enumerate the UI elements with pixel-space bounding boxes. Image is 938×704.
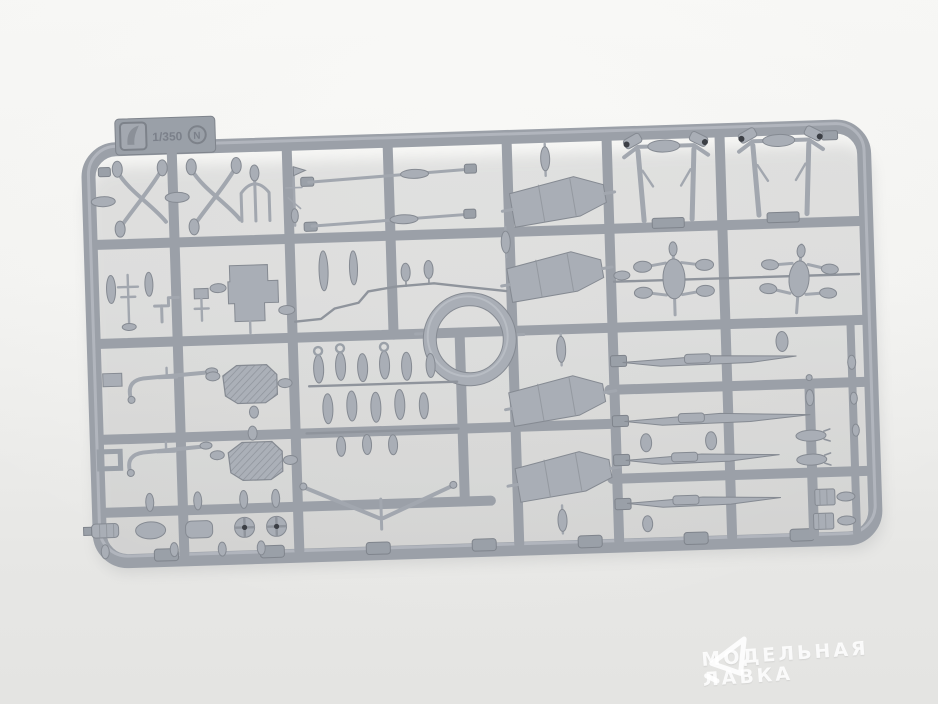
watermark: МОДЕЛЬНАЯ ЛАВКА bbox=[700, 620, 934, 704]
part-oval-plate bbox=[135, 521, 166, 539]
sprue-letter: N bbox=[193, 131, 201, 142]
sprue-tab: 1/350 N bbox=[115, 116, 216, 155]
part-rounded-plate bbox=[185, 520, 213, 538]
sprue-illustration: 1/350 N bbox=[0, 0, 938, 704]
scale-label: 1/350 bbox=[152, 129, 183, 144]
photo-of-model-kit-sprue: 1/350 N bbox=[0, 0, 938, 704]
part-propeller-1 bbox=[234, 517, 255, 538]
part-propeller-2 bbox=[266, 516, 287, 537]
watermark-logo-icon bbox=[700, 632, 756, 689]
